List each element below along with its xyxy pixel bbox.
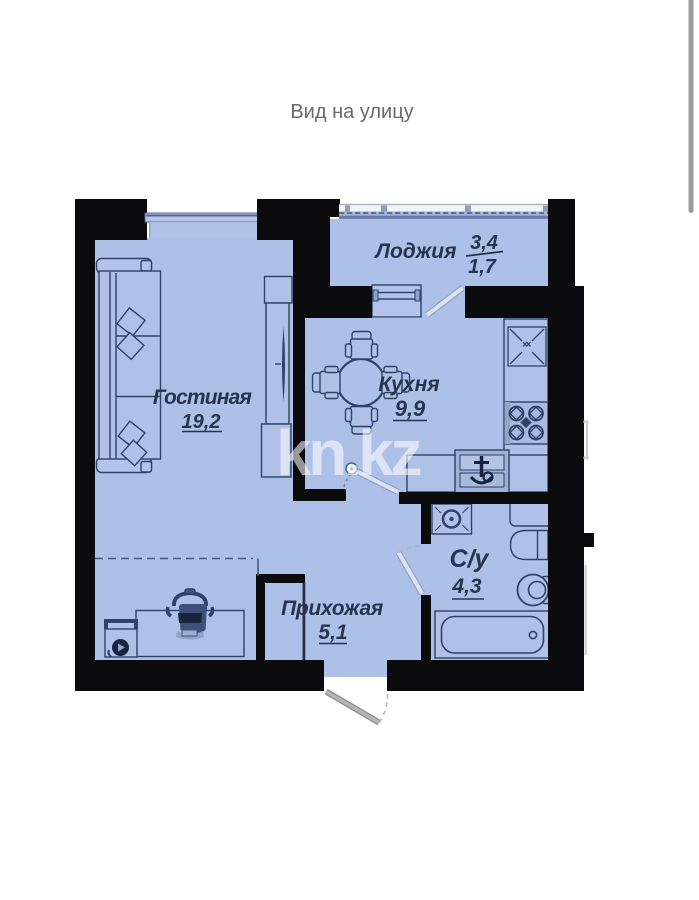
svg-text:5,1: 5,1 xyxy=(318,621,347,644)
svg-text:19,2: 19,2 xyxy=(182,411,221,433)
svg-text:kn.kz: kn.kz xyxy=(276,417,420,489)
svg-text:4,3: 4,3 xyxy=(451,575,482,598)
svg-text:Вид на улицу: Вид на улицу xyxy=(290,101,413,123)
svg-text:3,4: 3,4 xyxy=(470,232,498,254)
svg-text:Гостиная: Гостиная xyxy=(153,386,252,409)
svg-text:Лоджия: Лоджия xyxy=(374,240,457,263)
svg-text:С/у: С/у xyxy=(450,545,490,573)
svg-text:1,7: 1,7 xyxy=(468,256,497,278)
svg-text:Кухня: Кухня xyxy=(378,373,439,396)
svg-text:Прихожая: Прихожая xyxy=(281,597,383,620)
